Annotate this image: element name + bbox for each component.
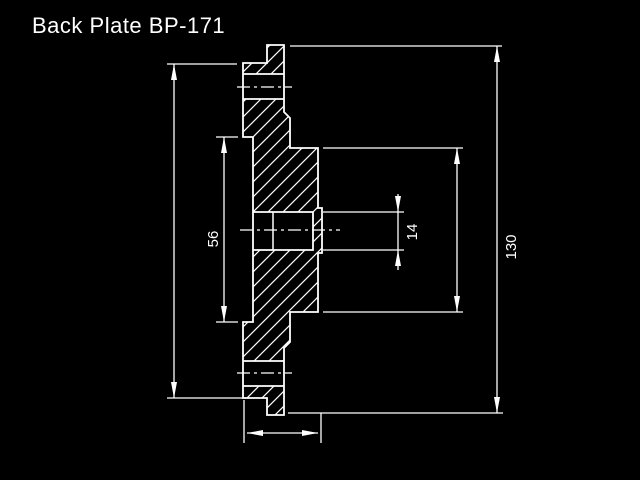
arrow-56-bottom (221, 306, 227, 322)
drawing-canvas: Back Plate BP-171 (0, 0, 640, 480)
arrow-130-top (494, 46, 500, 62)
arrow-14-top (395, 196, 401, 212)
arrow-130-bottom (494, 397, 500, 413)
dimension-lines (174, 46, 497, 433)
arrow-boss-bottom (454, 296, 460, 312)
technical-drawing: 56 14 130 (0, 0, 640, 480)
arrow-left-bottom (171, 382, 177, 398)
arrow-boss-top (454, 148, 460, 164)
arrow-14-bottom (395, 250, 401, 266)
dim-label-outer-diameter: 130 (503, 234, 520, 259)
arrow-56-top (221, 137, 227, 153)
dim-label-bore-diameter: 14 (404, 224, 421, 241)
dim-label-recess-diameter: 56 (205, 231, 222, 248)
arrow-width-left (247, 430, 263, 436)
arrow-width-right (302, 430, 318, 436)
arrow-left-top (171, 64, 177, 80)
